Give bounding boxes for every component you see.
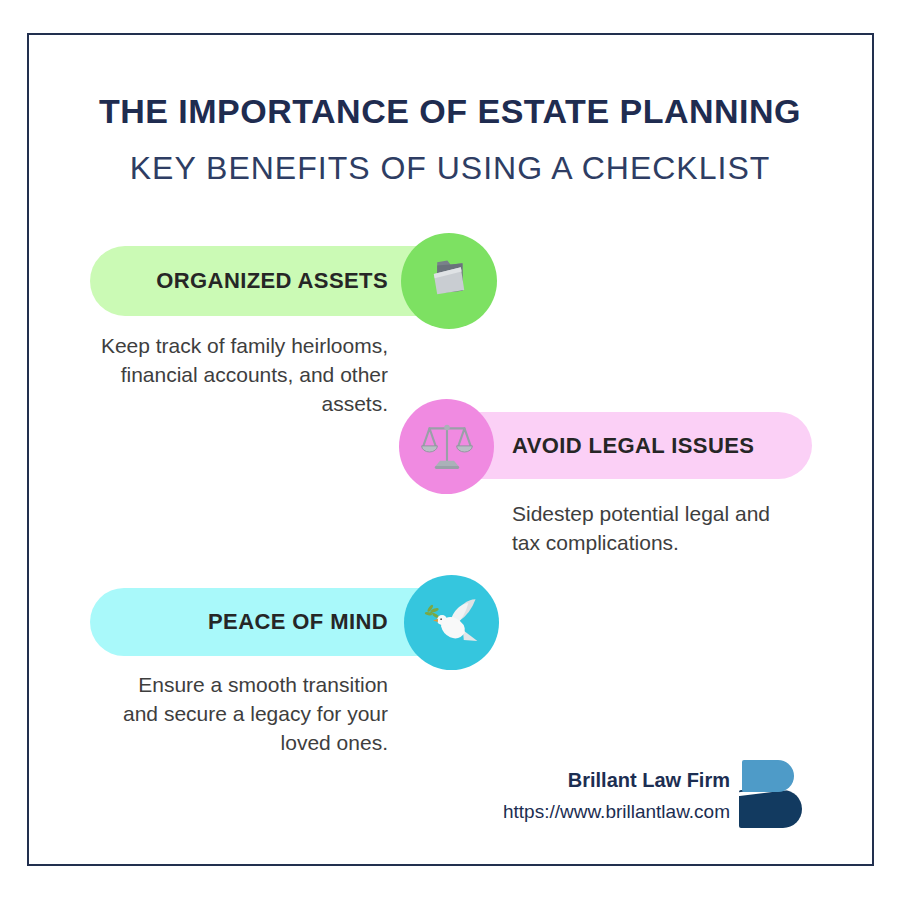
scales-icon [419, 417, 475, 477]
page-subtitle: KEY BENEFITS OF USING A CHECKLIST [0, 150, 900, 187]
infographic-canvas: THE IMPORTANCE OF ESTATE PLANNING KEY BE… [0, 0, 900, 900]
benefit-label: AVOID LEGAL ISSUES [446, 433, 812, 459]
logo-shape-bottom [739, 790, 802, 828]
benefit-badge-avoid-legal-issues [399, 399, 494, 494]
brillant-law-logo [739, 760, 803, 828]
benefit-badge-organized-assets [401, 233, 497, 329]
logo-shape-top [742, 760, 794, 792]
page-title: THE IMPORTANCE OF ESTATE PLANNING [0, 92, 900, 131]
folder-icon [422, 252, 476, 310]
benefit-pill-avoid-legal-issues: AVOID LEGAL ISSUES [446, 412, 812, 479]
benefit-description: Keep track of family heirlooms, financia… [98, 332, 388, 419]
benefit-badge-peace-of-mind [404, 575, 499, 670]
benefit-description: Ensure a smooth transition and secure a … [103, 671, 388, 758]
dove-icon [423, 592, 481, 654]
benefit-description: Sidestep potential legal and tax complic… [512, 500, 797, 558]
website-url: https://www.brillantlaw.com [503, 801, 730, 823]
company-name: Brillant Law Firm [568, 769, 730, 792]
